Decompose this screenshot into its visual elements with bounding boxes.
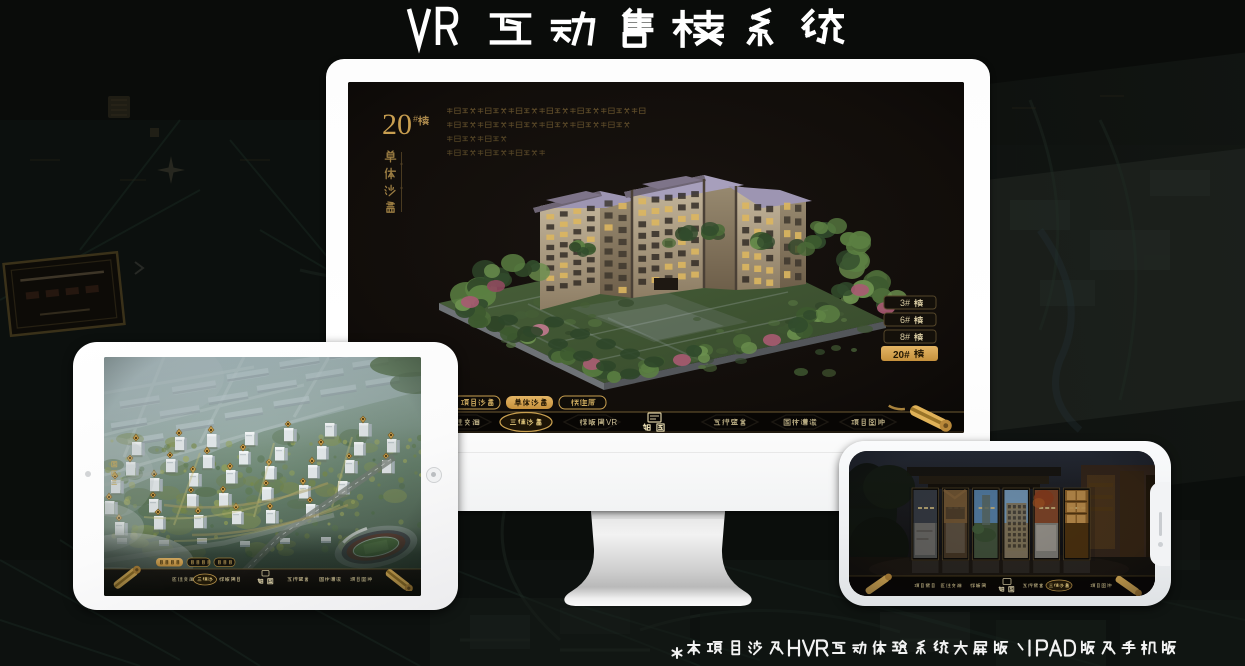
- svg-text:3#: 3#: [900, 298, 910, 308]
- svg-text:6#: 6#: [900, 315, 910, 325]
- svg-text:20: 20: [382, 108, 412, 141]
- svg-text:#: #: [413, 114, 418, 124]
- svg-text:8#: 8#: [900, 332, 910, 342]
- svg-text:VR: VR: [606, 418, 617, 427]
- svg-text:20#: 20#: [893, 350, 910, 361]
